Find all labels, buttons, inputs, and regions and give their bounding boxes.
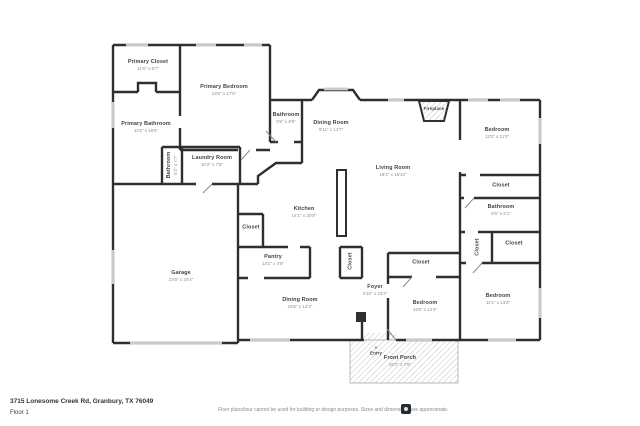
wall-stub [356, 312, 366, 322]
floor-label: Floor 1 [10, 410, 29, 416]
disclaimer-text: Floor plans/tour cannot be used for buil… [218, 407, 448, 413]
kitchen-island [337, 170, 346, 236]
address-text: 3715 Lonesome Creek Rd, Granbury, TX 760… [10, 398, 153, 405]
floor-plan-drawing [0, 0, 640, 426]
fireplace-shape [419, 101, 449, 121]
floor-plan: Primary Closet11'6" x 8'7"Primary Bedroo… [0, 0, 640, 426]
brand-logo-icon [401, 404, 411, 414]
window-markers [112, 44, 542, 345]
front-porch-area [350, 340, 458, 383]
